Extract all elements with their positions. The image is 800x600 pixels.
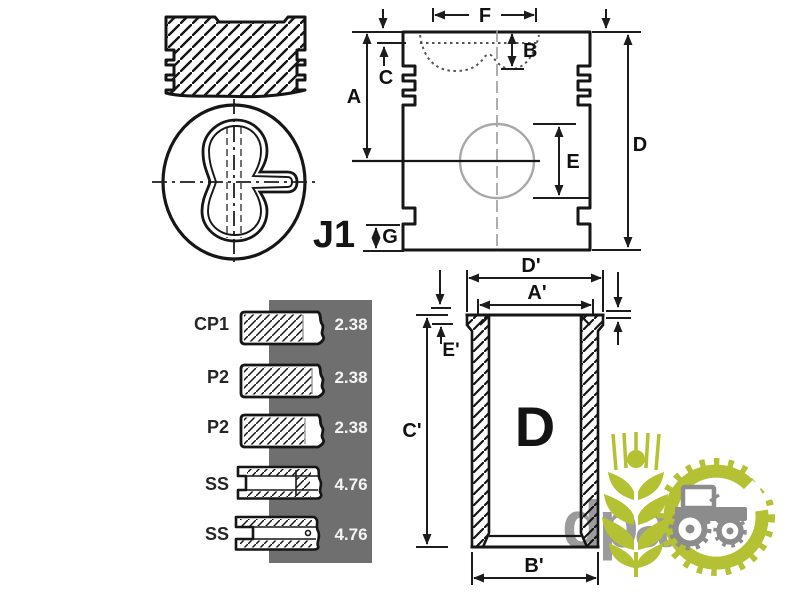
dim-label-d: D xyxy=(633,134,647,156)
dim-label-g: G xyxy=(382,226,398,248)
ring-value: 4.76 xyxy=(334,525,367,544)
liner-wall-left xyxy=(467,315,489,547)
dim-label-d-prime: D' xyxy=(521,255,540,277)
dim-label-e-prime: E' xyxy=(442,340,459,361)
diagram-svg: dpa xyxy=(0,0,800,600)
piston-side-view: F B C A E D G J1 xyxy=(313,5,647,256)
ring-value: 2.38 xyxy=(334,368,367,387)
ring-value: 2.38 xyxy=(334,418,367,437)
ring-stack-panel: CP1 2.38 P2 2.38 P2 2.38 SS 4 xyxy=(194,300,372,563)
liner-bore-letter: D xyxy=(515,395,555,458)
ring-label: CP1 xyxy=(194,314,229,334)
dim-label-b-prime: B' xyxy=(524,555,543,577)
dim-label-e: E xyxy=(566,151,579,173)
dim-label-c-prime: C' xyxy=(402,420,421,442)
piston-top-view xyxy=(152,99,316,265)
dim-label-f: F xyxy=(479,5,491,27)
parts-diagram: dpa xyxy=(0,0,800,600)
dim-label-b: B xyxy=(523,40,537,62)
dim-label-c: C xyxy=(379,67,393,89)
figure-callout-j1: J1 xyxy=(313,214,355,256)
dim-label-a-prime: A' xyxy=(527,282,546,304)
ring-label: P2 xyxy=(207,417,229,437)
ring-value: 4.76 xyxy=(334,475,367,494)
ring-value: 2.38 xyxy=(334,315,367,334)
ring-label: SS xyxy=(205,474,229,494)
tractor-icon xyxy=(671,487,747,548)
ring-label: SS xyxy=(205,524,229,544)
cylinder-liner-view: D D' A' E' C' B' xyxy=(402,255,631,585)
ring-label: P2 xyxy=(207,367,229,387)
piston-crown-section xyxy=(166,17,305,97)
dim-label-a: A xyxy=(347,86,361,108)
crown-hatched-body xyxy=(166,17,305,97)
